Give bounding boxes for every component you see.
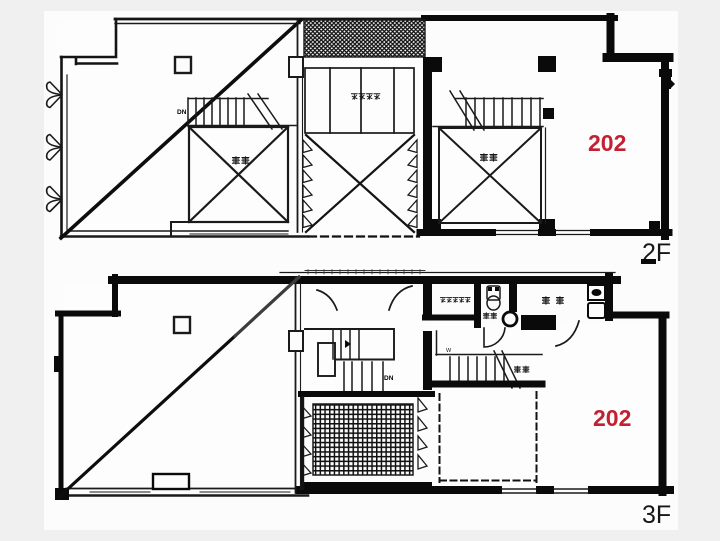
svg-text:202: 202	[588, 130, 626, 156]
svg-text:3F: 3F	[642, 501, 671, 529]
svg-text:DN: DN	[384, 375, 394, 382]
svg-text:DN: DN	[177, 109, 187, 116]
svg-text:202: 202	[593, 405, 631, 431]
svg-text:W: W	[446, 348, 452, 354]
